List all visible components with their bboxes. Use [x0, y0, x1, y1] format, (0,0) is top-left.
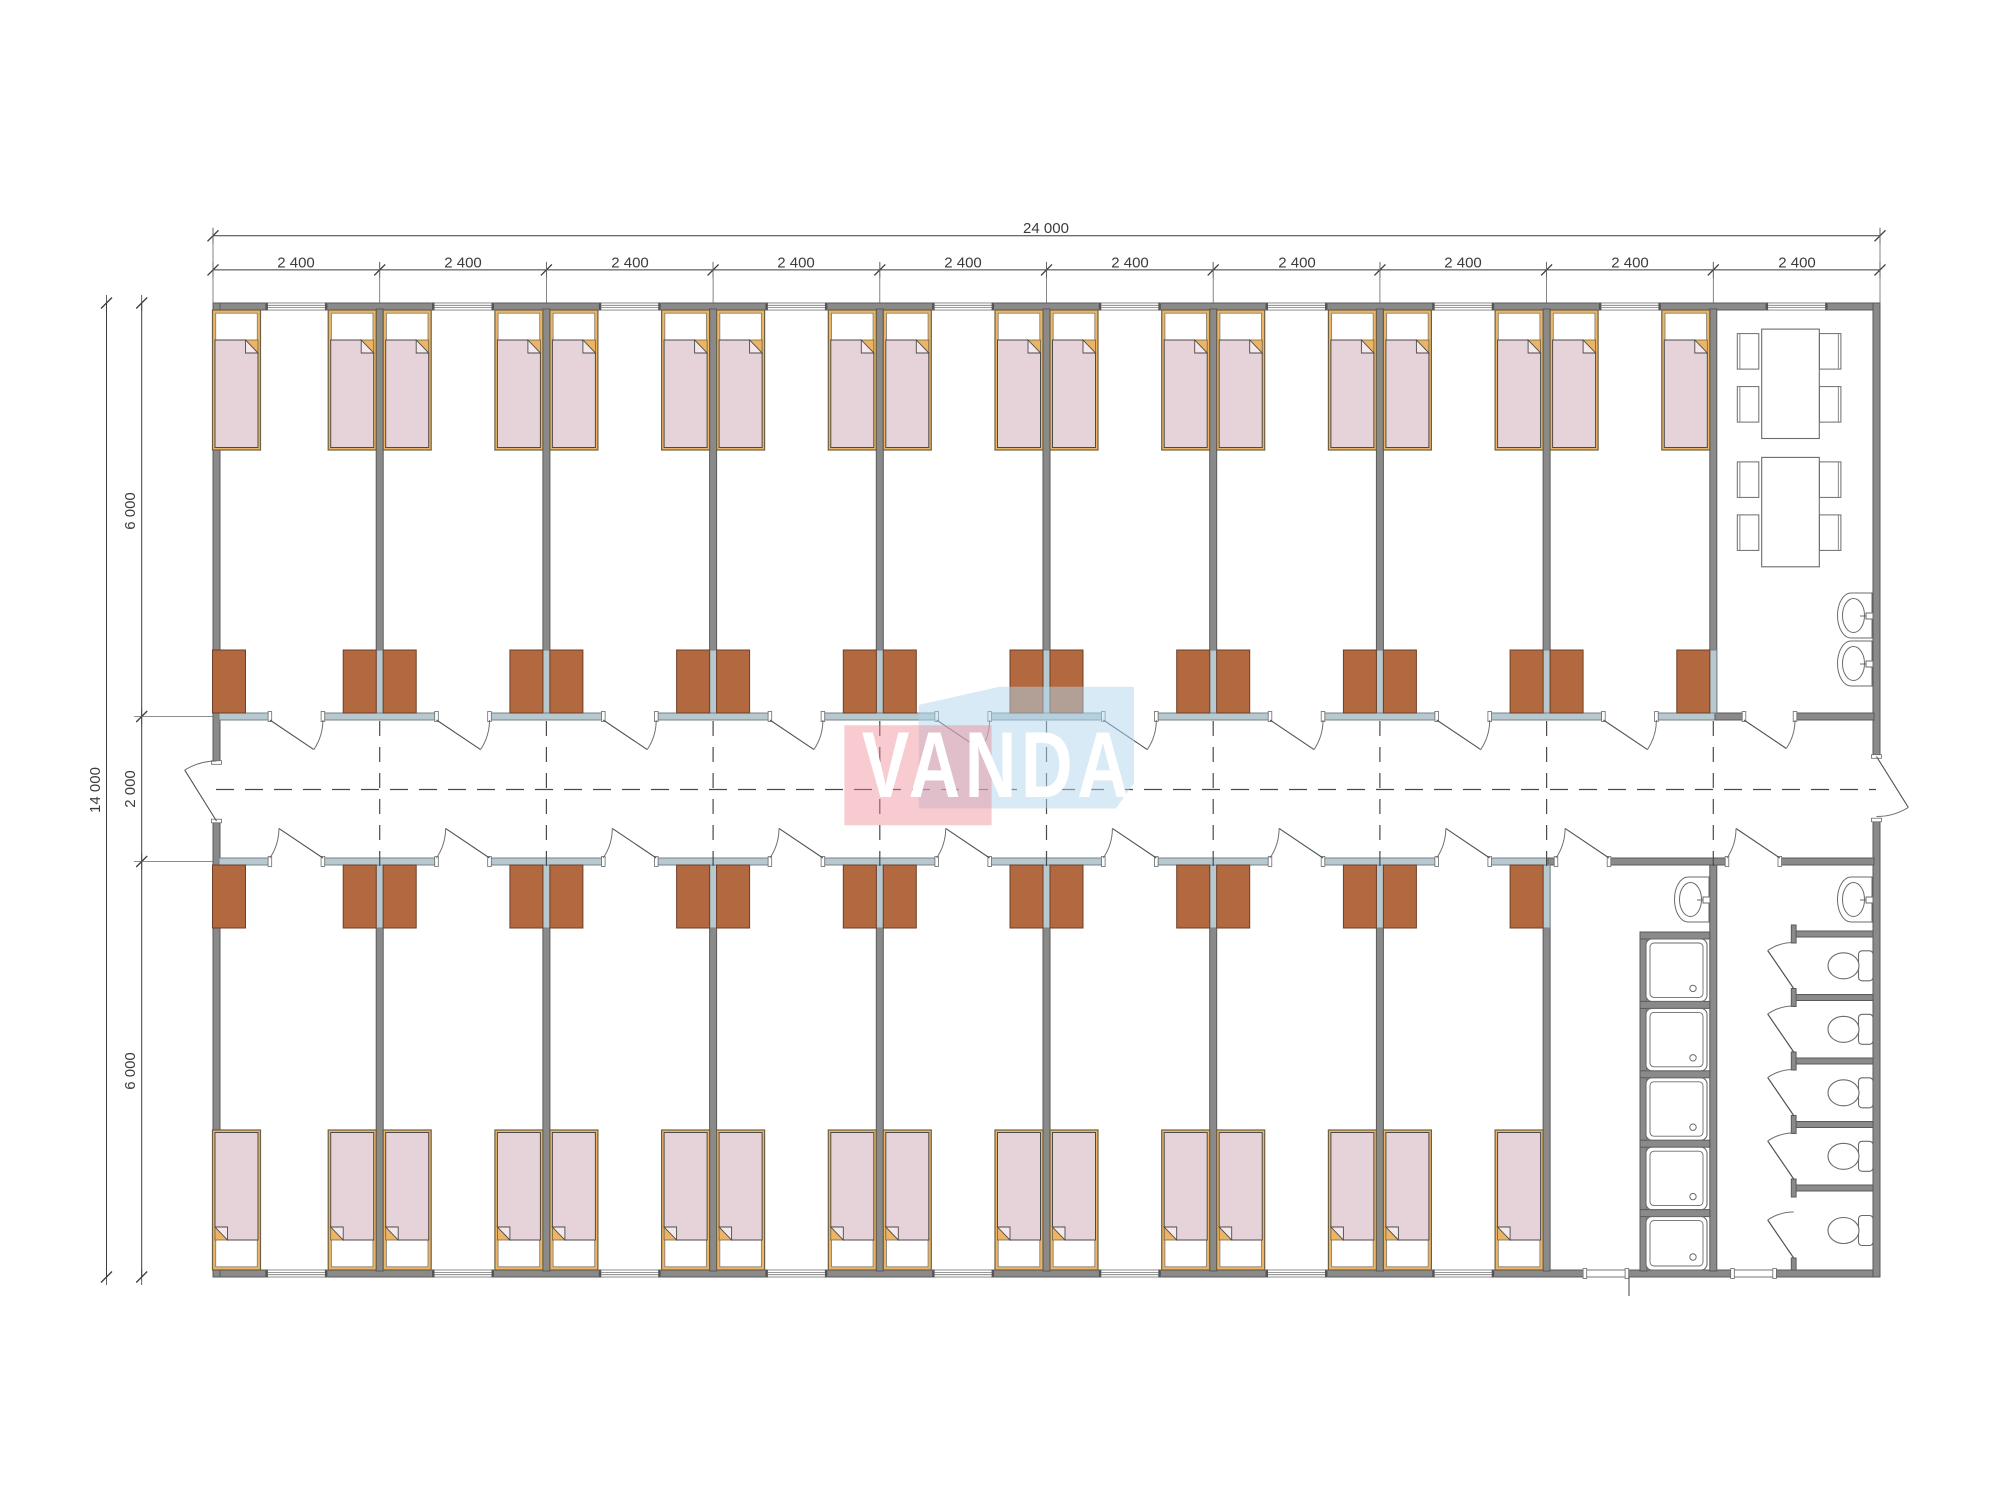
svg-text:2 400: 2 400 — [777, 255, 815, 272]
svg-text:2 400: 2 400 — [1278, 255, 1316, 272]
svg-text:2 400: 2 400 — [444, 255, 482, 272]
svg-text:2 400: 2 400 — [611, 255, 649, 272]
svg-text:24 000: 24 000 — [1023, 220, 1069, 237]
svg-text:14 000: 14 000 — [87, 767, 104, 813]
svg-text:2 400: 2 400 — [1611, 255, 1649, 272]
svg-text:2 400: 2 400 — [1444, 255, 1482, 272]
svg-text:VANDA: VANDA — [862, 711, 1133, 817]
svg-text:2 400: 2 400 — [944, 255, 982, 272]
svg-text:6 000: 6 000 — [122, 1052, 139, 1090]
svg-text:2 400: 2 400 — [1778, 255, 1816, 272]
svg-text:2 400: 2 400 — [277, 255, 315, 272]
svg-text:2 400: 2 400 — [1111, 255, 1149, 272]
svg-text:6 000: 6 000 — [122, 492, 139, 530]
svg-text:2 000: 2 000 — [122, 770, 139, 808]
